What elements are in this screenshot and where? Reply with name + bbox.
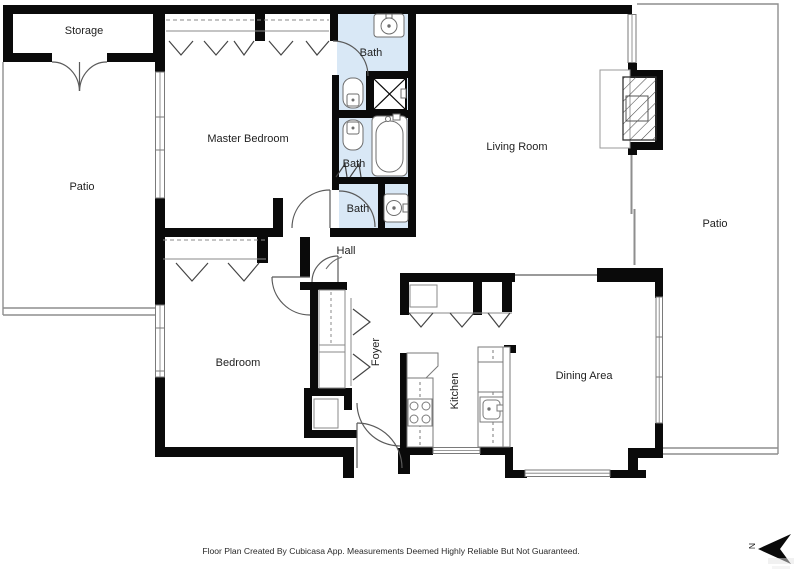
window-dining-right bbox=[656, 297, 663, 423]
fireplace bbox=[600, 70, 656, 148]
sliding-door-living-patio bbox=[632, 155, 635, 265]
label-kitchen: Kitchen bbox=[449, 373, 461, 410]
toilet-icon-bath-middle bbox=[343, 120, 363, 150]
master-closet bbox=[166, 20, 329, 55]
label-foyer: Foyer bbox=[370, 338, 382, 366]
label-storage: Storage bbox=[65, 25, 104, 37]
floor-plan-page: Storage Patio Master Bedroom Bath Bath B… bbox=[0, 0, 800, 571]
shower-icon bbox=[373, 78, 406, 110]
toilet-icon-bath-top bbox=[343, 78, 363, 108]
label-dining-area: Dining Area bbox=[556, 370, 614, 382]
footer-disclaimer: Floor Plan Created By Cubicasa App. Meas… bbox=[202, 546, 579, 556]
entry-door bbox=[357, 403, 402, 468]
sink-icon-bath-lower bbox=[384, 194, 408, 222]
label-bath-top: Bath bbox=[360, 47, 383, 59]
hall-door bbox=[312, 256, 338, 282]
label-bath-middle: Bath bbox=[343, 158, 366, 170]
label-master-bedroom: Master Bedroom bbox=[207, 133, 288, 145]
kitchen-closets bbox=[409, 285, 512, 327]
fireplace-hatch bbox=[623, 77, 656, 140]
stove-icon bbox=[408, 399, 432, 426]
hall-label-leader bbox=[326, 257, 342, 269]
watermark-logo bbox=[768, 558, 794, 569]
master-bedroom-door bbox=[292, 190, 330, 228]
storage-double-door bbox=[52, 62, 107, 91]
utility-closet-box bbox=[314, 399, 338, 428]
floor-plan-drawing: Storage Patio Master Bedroom Bath Bath B… bbox=[0, 0, 800, 571]
foyer-closet bbox=[319, 290, 370, 388]
label-patio-right: Patio bbox=[702, 218, 727, 230]
kitchen-sink-icon bbox=[480, 397, 503, 422]
label-bedroom: Bedroom bbox=[216, 357, 261, 369]
label-patio-left: Patio bbox=[69, 181, 94, 193]
window-master-left bbox=[156, 72, 165, 198]
sink-icon-bath-top bbox=[374, 14, 404, 37]
window-dining-bay bbox=[525, 470, 610, 477]
compass-north-label: N bbox=[747, 543, 757, 549]
label-bath-lower: Bath bbox=[347, 203, 370, 215]
compass: N bbox=[747, 534, 794, 569]
bedroom-closet bbox=[163, 240, 266, 281]
window-living-top-right bbox=[628, 15, 636, 63]
bathtub-icon bbox=[372, 114, 407, 176]
window-kitchen-bottom bbox=[433, 448, 480, 454]
label-hall: Hall bbox=[337, 245, 356, 257]
window-bedroom-left bbox=[156, 305, 165, 377]
label-living-room: Living Room bbox=[486, 141, 547, 153]
